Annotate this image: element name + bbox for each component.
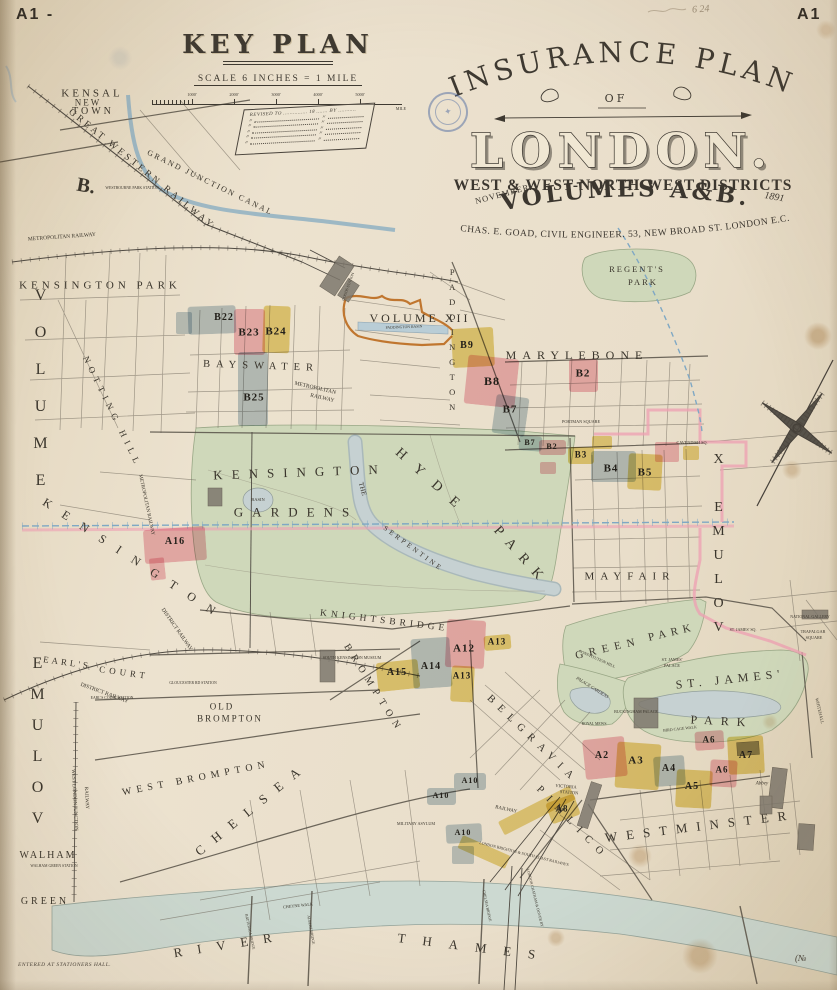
svg-text:CHAS. E. GOAD, CIVIL ENGINEER.: CHAS. E. GOAD, CIVIL ENGINEER. 53, NEW B… — [460, 214, 791, 241]
map-label: PARK — [490, 524, 551, 590]
scale-tick-label: 2000' — [229, 92, 238, 97]
map-label: ST. JAMES' — [675, 667, 785, 690]
scale-tick — [192, 99, 193, 105]
map-label: LONDON CHATHAM & DOVER RY — [525, 869, 543, 928]
map-label: RIVER — [173, 929, 288, 960]
map-label: WEST LONDON JUNCTION — [70, 769, 78, 831]
scale-tick-label: 5000' — [355, 92, 364, 97]
map-label: COURT — [99, 665, 150, 681]
title-credit: CHAS. E. GOAD, CIVIL ENGINEER. 53, NEW B… — [460, 214, 791, 241]
map-label: WHITEHALL — [814, 698, 824, 725]
map-label: MAYFAIR — [585, 572, 676, 583]
scale-tick-label: 3000' — [271, 92, 280, 97]
map-label: ALBERT BRIDGE — [306, 915, 315, 945]
map-label: RAILWAY — [495, 805, 518, 815]
map-label: KENSINGTON — [213, 462, 387, 481]
map-label: WALHAM — [20, 851, 77, 861]
map-label: PALACE GARDENS — [575, 676, 609, 699]
map-label: METROPOLITAN RAILWAY — [137, 474, 155, 536]
revised-box: REVISED TO ............... 18 ....... BY… — [235, 103, 376, 156]
footer-entered: ENTERED AT STATIONERS HALL. — [18, 962, 111, 968]
map-label: PARK — [647, 622, 697, 644]
key-plan-title: KEY PLAN — [150, 30, 406, 60]
map-label: Abbey — [756, 782, 769, 787]
map-label: GOODS STATION — [342, 272, 356, 301]
map-label: KNIGHTSBRIDGE — [319, 609, 448, 634]
map-label: METROPOLITAN RAILWAY — [28, 233, 96, 243]
map-label: WESTBOURNE PARK STATION — [105, 187, 158, 191]
map-label: PORTMAN SQUARE — [562, 420, 600, 424]
map-label: NATIONAL GALLERY — [790, 615, 830, 619]
map-label: KENSINGTON — [41, 496, 230, 624]
map-label: BIRD CAGE WALK — [663, 725, 697, 733]
map-label: ST. JAMES' SQ. — [730, 628, 757, 632]
map-label: PADDINGTON BASIN — [386, 325, 423, 330]
scale-bar-subdivisions — [152, 100, 192, 105]
map-label: BELGRAVIA — [484, 694, 579, 787]
map-label: LONDON BRIGHTON & SOUTH COAST RAILWAYS — [479, 841, 569, 867]
scale-tick — [318, 99, 319, 105]
scale-tick — [234, 99, 235, 105]
map-label: ROYAL MEWS — [582, 723, 607, 727]
map-label: WEST BROMPTON — [121, 760, 270, 798]
map-label: DISTRICT RAILWAY — [79, 683, 128, 705]
map-label: MARYLEBONE — [506, 349, 649, 361]
map-label: HYDE — [392, 446, 472, 520]
map-label: THAMES — [397, 931, 553, 963]
map-label: OLD — [210, 703, 235, 712]
map-label: SQUARE — [806, 636, 823, 640]
map-label: BASIN — [251, 498, 265, 503]
map-label: EARL'S COURT STATION — [91, 697, 134, 701]
map-label: BUCKINGHAM PALACE — [614, 710, 658, 714]
map-label: PARK — [628, 278, 658, 287]
map-label: GLOUCESTER RD STATION — [169, 682, 216, 686]
map-label: PIMLICO — [534, 785, 610, 864]
map-label: GARDENS — [234, 506, 358, 519]
map-label: VOLUME — [32, 287, 48, 509]
corner-mark-left: A1 - — [16, 6, 54, 24]
map-label: BROMPTON — [197, 715, 263, 724]
scale-tick-label: 1000' — [187, 92, 196, 97]
title-of: OF — [605, 92, 628, 105]
map-label: RAILWAY — [83, 787, 89, 809]
map-label: GREEN — [574, 636, 641, 662]
map-label: NOTTING HILL — [81, 355, 143, 469]
map-label: ST. JAMES' — [662, 658, 683, 662]
key-plan-underline — [223, 61, 333, 65]
map-sheet: B22B23B24B25B9B8B7B7B2B2B3B4B5A16A12A13A… — [0, 0, 837, 990]
map-label: EARL'S — [43, 655, 92, 671]
map-label: THE — [357, 482, 367, 497]
map-label: X EMULOV — [711, 452, 725, 644]
map-label: PALACE — [664, 664, 680, 668]
map-label: STATION — [560, 790, 579, 796]
map-label: GREEN — [21, 897, 69, 907]
title-block: INSURANCE PLAN OF LONDON. LONDON. WEST &… — [408, 14, 837, 254]
scale-end-label: MILE — [396, 106, 406, 111]
map-label: SERPENTINE — [382, 525, 444, 573]
map-label: TRAFALGAR — [801, 630, 826, 634]
map-label: WESTMINSTER — [604, 808, 796, 844]
scale-label: SCALE 6 INCHES = 1 MILE — [150, 74, 406, 84]
map-label: B. — [75, 175, 97, 198]
map-label: PARK — [690, 713, 753, 728]
footer-number: (№ — [795, 953, 806, 963]
map-label: WALHAM GREEN STATION — [30, 865, 77, 869]
key-plan: KEY PLAN SCALE 6 INCHES = 1 MILE MILE 10… — [150, 30, 406, 180]
map-label: CHELSEA BRIDGE — [481, 890, 491, 922]
map-label: BAYSWATER — [203, 360, 319, 375]
map-label: EMULOV — [29, 655, 45, 841]
scale-tick — [276, 99, 277, 105]
title-city: LONDON. — [470, 124, 774, 179]
map-label: CAVENDISH SQ. — [676, 441, 707, 445]
map-label: MILITARY ASYLUM — [397, 822, 435, 826]
map-label: REGENT'S — [609, 265, 665, 274]
scale-tick-label: 4000' — [313, 92, 322, 97]
map-label: DISTRICT RAILWAY — [159, 608, 192, 653]
map-label: CHEYNE WALK — [283, 902, 313, 909]
title-year: 1891 — [763, 190, 785, 204]
map-label: PADDINGTON — [448, 267, 457, 417]
